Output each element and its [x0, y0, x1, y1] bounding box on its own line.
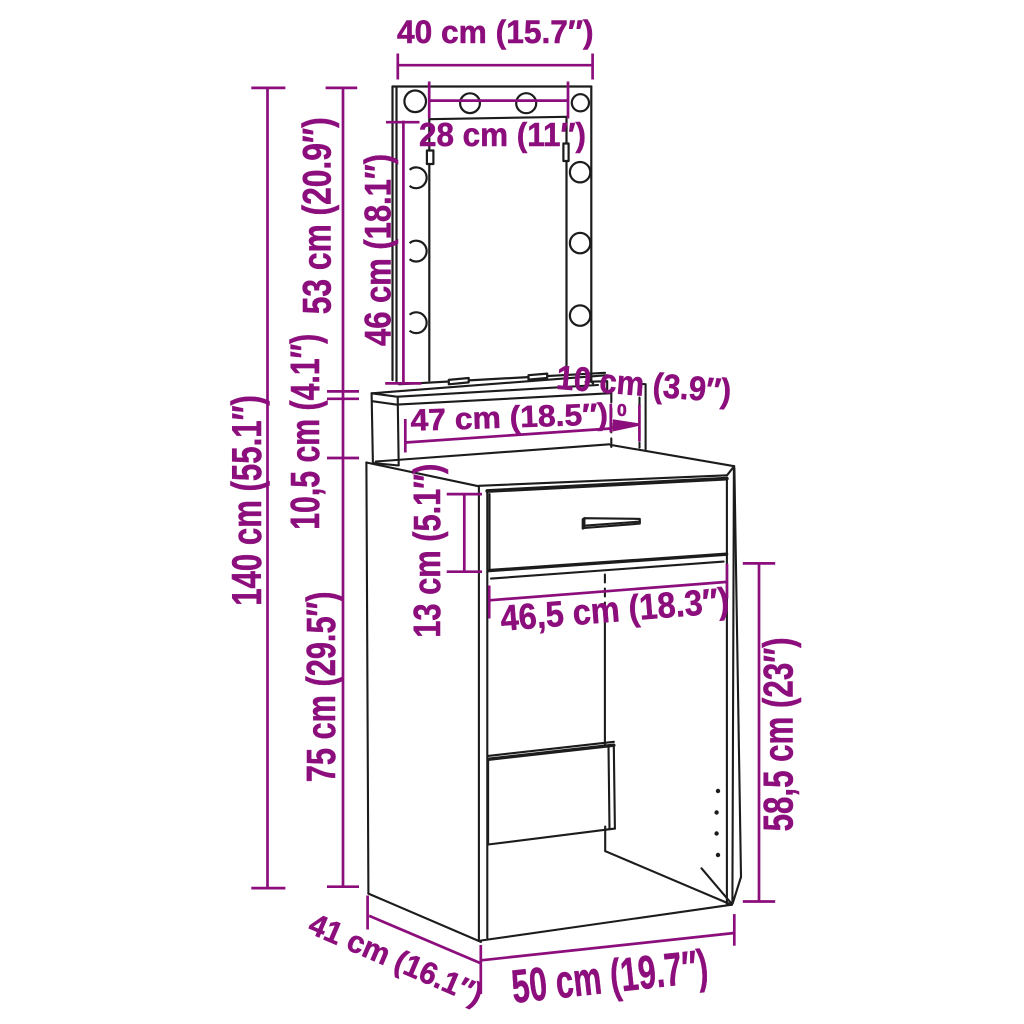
svg-text:47 cm (18.5″): 47 cm (18.5″)	[410, 397, 609, 438]
svg-text:10,5 cm (4.1″): 10,5 cm (4.1″)	[282, 334, 328, 530]
svg-text:40 cm (15.7″): 40 cm (15.7″)	[397, 14, 594, 50]
svg-text:13 cm (5.1″): 13 cm (5.1″)	[407, 464, 449, 638]
svg-text:53 cm (20.9″): 53 cm (20.9″)	[296, 117, 340, 314]
svg-text:75 cm (29.5″): 75 cm (29.5″)	[298, 592, 344, 783]
svg-text:58,5 cm (23″): 58,5 cm (23″)	[755, 637, 802, 831]
svg-text:28 cm (11″): 28 cm (11″)	[419, 116, 586, 153]
svg-text:46 cm (18.1″): 46 cm (18.1″)	[358, 154, 399, 346]
svg-text:0: 0	[617, 400, 627, 420]
svg-text:140 cm (55.1″): 140 cm (55.1″)	[223, 395, 270, 606]
